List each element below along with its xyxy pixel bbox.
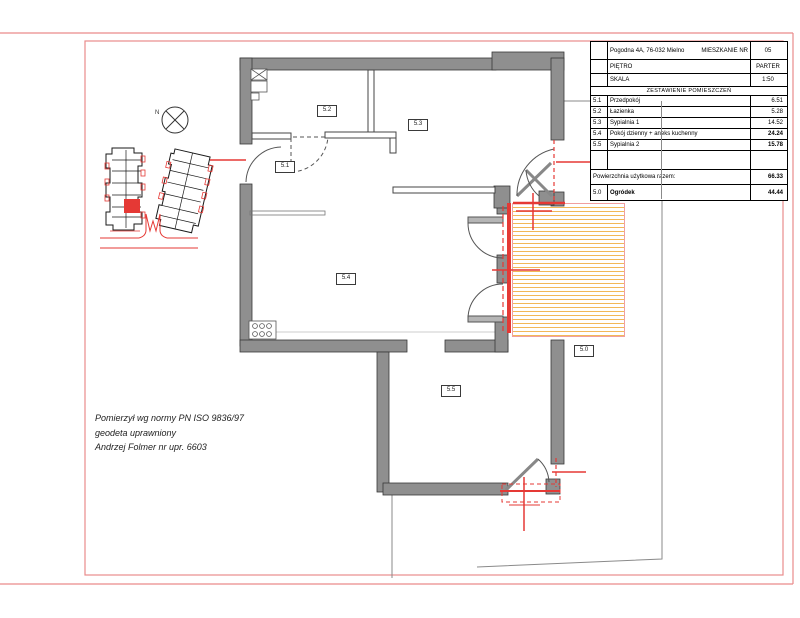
plan-label-living: 5.4 (336, 273, 356, 285)
garden-row: 5.0 Ogródek 44.44 (591, 184, 787, 200)
stove-symbol (249, 321, 276, 339)
room-area: 5.28 (750, 107, 787, 117)
scale-label: SKALA (608, 74, 750, 86)
rooms-header: ZESTAWIENIE POMIESZCZEŃ (591, 86, 787, 95)
plan-label-bathroom: 5.2 (317, 105, 337, 117)
partition (390, 138, 396, 153)
counter-symbol (250, 211, 325, 215)
room-id: 5.4 (591, 129, 608, 139)
site-boundary-over-table (661, 101, 662, 199)
room-row: 5.3 Sypialnia 1 14.52 (591, 117, 787, 128)
room-area: 14.52 (750, 118, 787, 128)
drawing-sheet: N (0, 0, 800, 618)
address-text: Pogodna 4A, 76-032 Mielno (610, 48, 684, 54)
site-plan: N (100, 107, 215, 248)
room-id: 5.5 (591, 140, 608, 150)
spacer-row (591, 150, 787, 169)
terrace-door2-arc (468, 284, 503, 319)
wall-segment (240, 58, 252, 144)
cell-empty (750, 151, 787, 169)
bathroom-door-dashed (291, 137, 328, 172)
room-id: 5.3 (591, 118, 608, 128)
title-block: Pogodna 4A, 76-032 Mielno MIESZKANIE NR … (590, 41, 788, 201)
garden-id: 5.0 (591, 185, 608, 200)
plan-label-bedroom1: 5.3 (408, 119, 428, 131)
plan-label-bedroom2: 5.5 (441, 385, 461, 397)
north-compass (162, 107, 188, 133)
scale-value: 1:50 (750, 74, 787, 86)
terrace-door1-leaf (468, 217, 503, 223)
wall-segment (240, 58, 496, 70)
plan-label-garden: 5.0 (574, 345, 594, 357)
bedroom2-door-leaf (506, 459, 538, 490)
room-area: 15.78 (750, 140, 787, 150)
room-name: Pokój dzienny + aneks kuchenny (608, 129, 750, 139)
partition (325, 132, 396, 138)
surveyor-line: Pomierzył wg normy PN ISO 9836/97 (95, 413, 244, 423)
partition-walls (252, 70, 495, 193)
walls (240, 52, 564, 495)
cell-empty (591, 74, 608, 86)
north-label: N (155, 110, 159, 116)
apartment-number: 05 (750, 42, 787, 59)
apartment-label: MIESZKANIE NR (701, 48, 748, 54)
title-row-scale: SKALA 1:50 (591, 73, 787, 86)
room-area: 6.51 (750, 96, 787, 106)
terrace-window-wall (507, 203, 511, 333)
surveyor-line: geodeta uprawniony (95, 428, 244, 438)
cell-empty (591, 151, 608, 169)
floor-value: PARTER (750, 60, 787, 73)
bedroom2-door-arc (538, 459, 549, 482)
title-row-floor: PIĘTRO PARTER (591, 59, 787, 73)
cell-empty (608, 151, 750, 169)
wall-segment (377, 352, 389, 492)
floor-label: PIĘTRO (608, 60, 750, 73)
partition (393, 187, 495, 193)
total-row: Powierzchnia użytkowa razem: 66.33 (591, 169, 787, 184)
room-id: 5.2 (591, 107, 608, 117)
wall-segment (240, 340, 407, 352)
cell-address: Pogodna 4A, 76-032 Mielno MIESZKANIE NR (608, 42, 750, 59)
room-area: 24.24 (750, 129, 787, 139)
room-row: 5.1 Przedpokój 6.51 (591, 95, 787, 106)
room-row: 5.5 Sypialnia 2 15.78 (591, 139, 787, 150)
wall-segment (551, 340, 564, 464)
shaft-symbol (251, 69, 267, 100)
surveyor-line: Andrzej Folmer nr upr. 6603 (95, 442, 244, 452)
garden-name: Ogródek (608, 185, 750, 200)
room-name: Przedpokój (608, 96, 750, 106)
title-row-address: Pogodna 4A, 76-032 Mielno MIESZKANIE NR … (591, 42, 787, 59)
wall-segment (383, 483, 508, 495)
room-name: Sypialnia 2 (608, 140, 750, 150)
surveyor-note: Pomierzył wg normy PN ISO 9836/97 geodet… (95, 413, 244, 457)
cell-empty (591, 60, 608, 73)
cell-empty (591, 42, 608, 59)
partition (252, 133, 291, 139)
room-row: 5.2 Łazienka 5.28 (591, 106, 787, 117)
room-name: Sypialnia 1 (608, 118, 750, 128)
garden-area: 44.44 (750, 185, 787, 200)
total-label: Powierzchnia użytkowa razem: (591, 170, 750, 184)
plan-label-hall: 5.1 (275, 161, 295, 173)
wall-segment (551, 58, 564, 140)
room-name: Łazienka (608, 107, 750, 117)
site-unit-highlight (124, 199, 140, 213)
site-building-a (106, 148, 142, 230)
partition (368, 70, 374, 136)
terrace-door1-arc (468, 223, 503, 258)
total-area: 66.33 (750, 170, 787, 184)
room-id: 5.1 (591, 96, 608, 106)
site-building-b (153, 148, 215, 234)
terrace-door2-leaf (468, 316, 503, 322)
room-row: 5.4 Pokój dzienny + aneks kuchenny 24.24 (591, 128, 787, 139)
